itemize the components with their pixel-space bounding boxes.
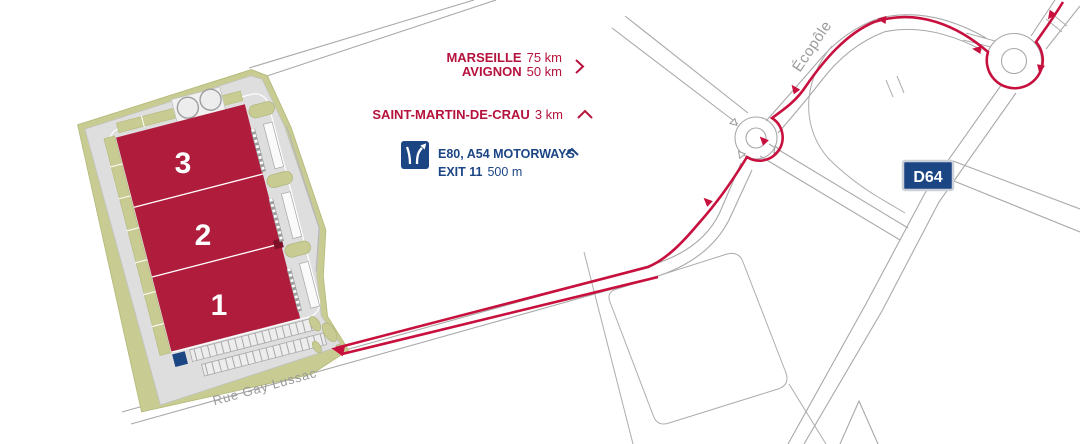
avignon-distance: 50 km: [527, 64, 562, 79]
access-map-page: 3 2 1 Écopôle Rue Gay Lussac D64 MARSEIL…: [0, 0, 1080, 444]
marseille-distance: 75 km: [527, 50, 562, 65]
marseille-name: MARSEILLE: [446, 50, 521, 65]
building-1-label: 1: [211, 289, 228, 322]
motorway-exit-line: EXIT 11500 m: [438, 165, 522, 179]
destination-avignon: AVIGNON50 km: [462, 64, 562, 79]
exit-distance: 500 m: [487, 165, 522, 179]
saint-martin-name: SAINT-MARTIN-DE-CRAU: [372, 107, 529, 122]
destination-marseille: MARSEILLE75 km: [446, 50, 562, 65]
saint-martin-distance: 3 km: [535, 107, 563, 122]
exit-label: EXIT 11: [438, 165, 483, 179]
motorway-title: E80, A54 MOTORWAYS: [438, 147, 575, 161]
building-2-label: 2: [195, 219, 212, 252]
d64-badge: D64: [903, 161, 953, 190]
motorway-name: E80, A54 MOTORWAYS: [438, 147, 575, 161]
access-map: 3 2 1 Écopôle Rue Gay Lussac D64 MARSEIL…: [0, 0, 1080, 444]
avignon-name: AVIGNON: [462, 64, 522, 79]
destination-saint-martin: SAINT-MARTIN-DE-CRAU3 km: [372, 107, 563, 122]
d64-badge-label: D64: [913, 169, 942, 186]
building-3-label: 3: [175, 147, 192, 180]
